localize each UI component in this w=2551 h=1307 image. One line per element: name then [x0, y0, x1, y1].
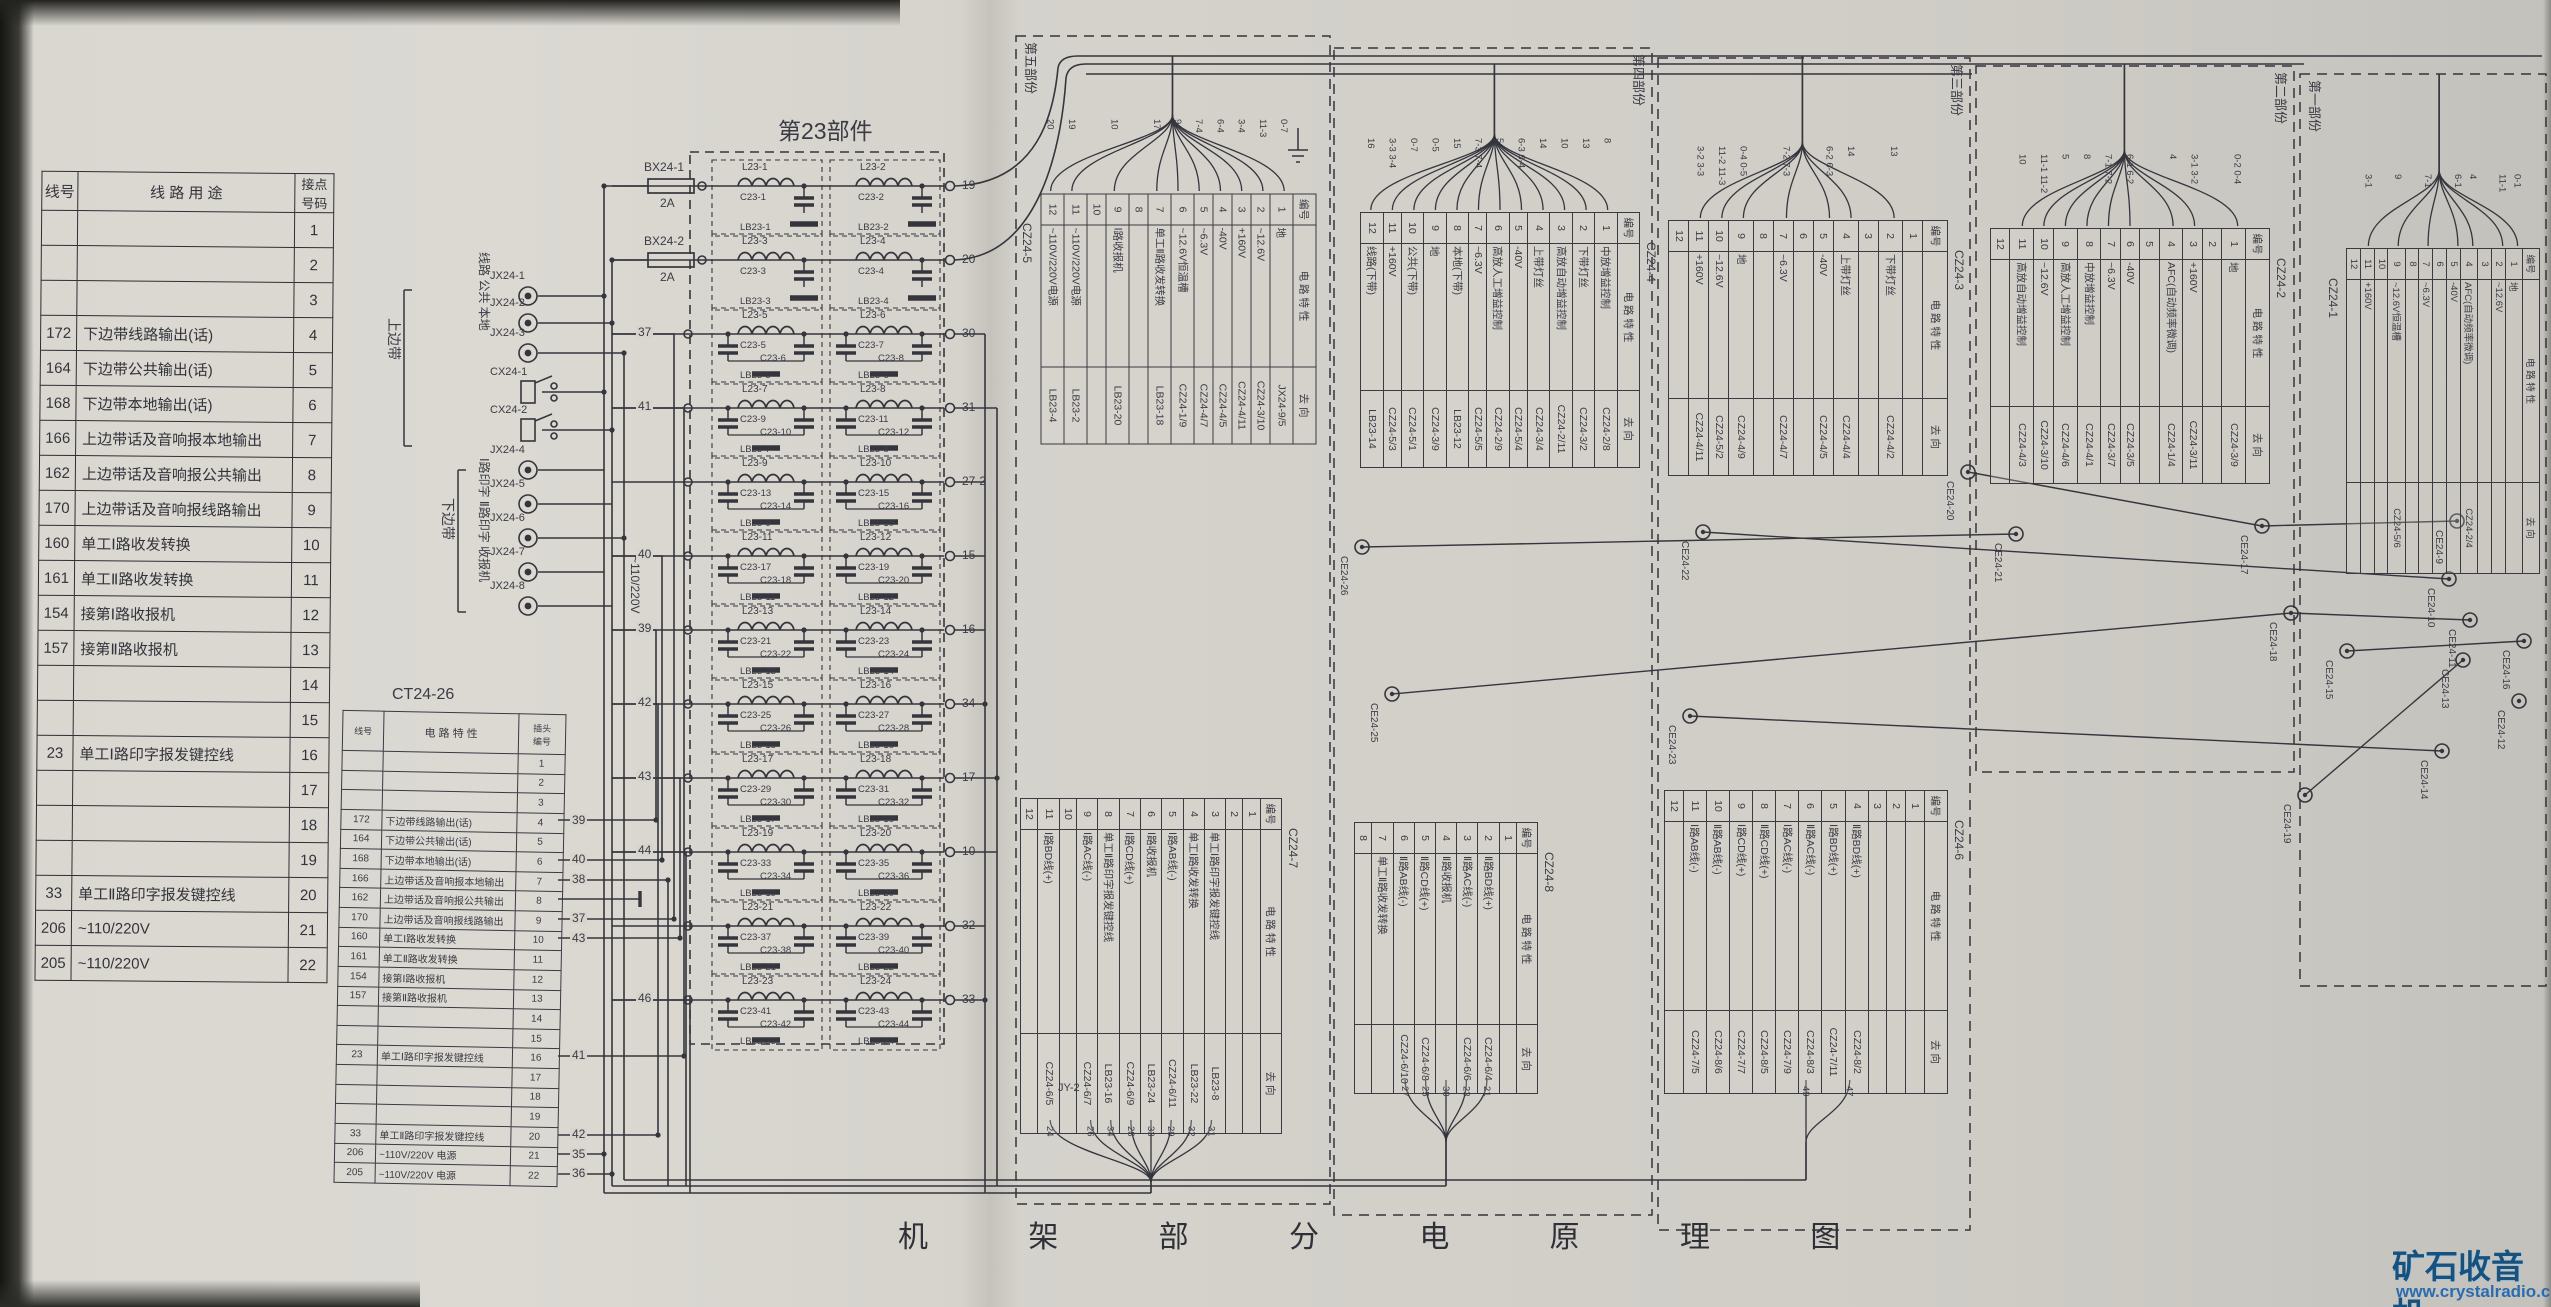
junction-dot: [609, 1171, 614, 1176]
destination: [1753, 399, 1773, 476]
interconnect-wire: [558, 334, 674, 919]
jack-center: [525, 350, 532, 357]
pin-row: 11Ⅰ路BD线(+)CZ24-6/5: [1038, 799, 1059, 1134]
filter-input-number: 46: [636, 992, 653, 1004]
pin-row: 4单工Ⅰ路收发转换LB23-22: [1183, 799, 1204, 1134]
junction-dot: [601, 293, 606, 298]
ct-table-grid: 线号电 路 特 性插头 编号123172下边带线路输出(话)4164下边带公共输…: [333, 710, 566, 1187]
capacitor-label: C23-31: [858, 784, 889, 795]
column-header: 电 路 特 性: [383, 711, 519, 754]
pin-number: 8: [2405, 249, 2419, 280]
filter-label: LB23-14: [858, 666, 894, 677]
destination: CZ24-6/6: [1457, 1025, 1478, 1094]
pin-number: 3: [294, 282, 333, 317]
connector-name-CZ24-6: CZ24-6: [1952, 820, 1966, 910]
pin-number: 1: [1595, 213, 1617, 244]
capacitor-label: C23-6: [760, 353, 786, 364]
inductor-coil: [738, 549, 794, 557]
plug-pin-number: 6: [516, 852, 563, 873]
circuit-characteristic: Ⅱ路BD线(+): [1845, 822, 1868, 1011]
circuit-characteristic: Ⅱ路AB线(-): [1393, 854, 1414, 1025]
fan-wire-number: 5: [2059, 154, 2070, 198]
circuit-characteristic: Ⅰ路CD线(+): [1730, 822, 1753, 1011]
pin-row: 2下带灯丝CZ24-3/2: [1572, 213, 1594, 468]
circuit-characteristic: 高放人工增益控制: [2053, 260, 2077, 407]
line-number: 162: [39, 455, 75, 490]
line-usage: 单工Ⅱ路收发转换: [74, 561, 291, 598]
circuit-characteristic: 本地(下带): [1446, 244, 1468, 391]
pin-number: 4: [1213, 194, 1232, 225]
fuse-rating: 2A: [660, 270, 675, 284]
column-header: 去 向: [1617, 391, 1639, 468]
ce-link-line: [1392, 613, 2291, 694]
pin-number: 12: [1021, 799, 1038, 830]
inductor-coil: [856, 327, 912, 335]
circuit-characteristic: Ⅰ路BD线(+): [1822, 822, 1845, 1011]
destination: [2374, 483, 2388, 574]
circuit-characteristic: [2347, 280, 2361, 483]
pin-number: 7: [1148, 194, 1171, 225]
ce-point-center: [2303, 793, 2307, 797]
circuit-characteristic: 上带灯丝: [1527, 244, 1549, 391]
pin-row: 9Ⅰ路AC线(-)CZ24-6/7: [1077, 799, 1098, 1134]
ce-point-center: [2260, 524, 2264, 528]
circuit-characteristic: +160V: [1383, 244, 1401, 391]
pin-row: 10: [1087, 194, 1106, 444]
junction-dot: [681, 1053, 686, 1058]
ce-point-label: CE24-17: [2238, 535, 2249, 605]
line-usage: [73, 666, 290, 703]
fan-wire-number: 32: [1185, 1126, 1196, 1166]
pin-number: 12: [291, 597, 330, 632]
fan-wire-number: 19: [1066, 119, 1077, 163]
circuit-characteristic: ~12.6V: [2034, 260, 2053, 407]
circuit-characteristic: [1243, 830, 1260, 1034]
filter-output-terminal: [946, 700, 955, 709]
ce-point-label: CE24-12: [2495, 710, 2506, 780]
pin-number: 10: [2374, 249, 2388, 280]
ce-point-label: CE24-26: [1338, 556, 1349, 626]
jack-label: JX24-7: [490, 546, 525, 558]
pin-number: 10: [1087, 194, 1106, 225]
circuit-characteristic: [1669, 252, 1689, 399]
circuit-characteristic: ~12.6V恒温槽: [1171, 225, 1194, 367]
switch-CX24-2: [521, 419, 535, 441]
circuit-characteristic: [2202, 260, 2221, 407]
connector-table-CZ24-1: 编号电 路 特 性去 向1地2~12.6V34AFC(自动频率微调)CZ24-2…: [2346, 248, 2540, 558]
pin-number: 7: [1469, 213, 1487, 244]
pin-number: 22: [288, 947, 327, 982]
interconnect-wire: [558, 408, 684, 1056]
circuit-characteristic: [2140, 260, 2159, 407]
table-row: 14: [37, 665, 329, 703]
line-usage-table: 线号线 路 用 途接点 号码123172下边带线路输出(话)4164下边带公共输…: [34, 171, 334, 984]
destination: CZ24-3/4: [1527, 391, 1549, 468]
filter-output-terminal: [946, 922, 955, 931]
pin-number: 4: [1527, 213, 1549, 244]
switch-CX24-1: [521, 381, 535, 403]
circuit-characteristic: [2405, 280, 2419, 483]
fan-wire-number: 10: [1108, 119, 1119, 163]
table-row: 17: [37, 770, 329, 808]
destination: CZ24-5/6: [2388, 483, 2405, 574]
filter-output-terminal: [946, 404, 955, 413]
section-name: 第五部份: [1022, 42, 1041, 152]
pin-row: 11高放自动增益控制CZ24-4/3: [2010, 229, 2034, 484]
line-usage: ~110/220V: [71, 911, 288, 948]
pin-number: 4: [1833, 221, 1858, 252]
column-header: 编号: [1516, 823, 1537, 854]
fan-wire-number: 29: [1165, 1126, 1176, 1166]
ce-point-label: CE24-21: [1992, 543, 2003, 613]
fan-wire-number: 13: [1888, 146, 1899, 190]
switch-lever: [535, 414, 552, 421]
pin-row: 2下带灯丝CZ24-4/2: [1878, 221, 1903, 476]
capacitor-label: C23-29: [740, 784, 771, 795]
table-row: 18: [36, 805, 328, 843]
pin-row: 4上带灯丝CZ24-4/4: [1833, 221, 1858, 476]
circuit-characteristic: 地: [1424, 244, 1446, 391]
jack-label: CX24-1: [490, 366, 527, 378]
ce-point-label: CE24-25: [1368, 703, 1379, 773]
fan-wire-number: 11-1 11-2: [2038, 154, 2049, 198]
circuit-characteristic: 地: [1269, 225, 1292, 367]
ce-point-center: [2522, 639, 2526, 643]
pin-row: 3单工Ⅰ路印字报发键控线LB23-8: [1204, 799, 1225, 1134]
destination: CZ24-6/9: [1119, 1034, 1140, 1134]
capacitor-label: C23-8: [878, 353, 904, 364]
destination: CZ24-4/7: [1194, 367, 1213, 444]
plug-pin-number: 11: [514, 950, 561, 971]
ce-point-label: CE24-19: [2281, 804, 2292, 874]
circuit-characteristic: [1868, 822, 1887, 1011]
circuit-characteristic: 单工Ⅰ路收发转换: [1183, 830, 1204, 1034]
upper-sideband-bracket: [404, 290, 412, 446]
pin-number: 12: [1041, 194, 1064, 225]
ce-link-line: [2291, 613, 2470, 620]
pin-row: 10: [2374, 249, 2388, 574]
fan-wire: [2124, 150, 2237, 226]
pin-number: 7: [1372, 823, 1393, 854]
circuit-characteristic: 下带灯丝: [1878, 252, 1903, 399]
pin-number: 2: [1250, 194, 1269, 225]
pin-row: 12: [1021, 799, 1038, 1134]
capacitor-label: C23-18: [760, 575, 791, 586]
ce-point-label: CE24-14: [2418, 760, 2429, 830]
inductor-label: L23-14: [860, 606, 891, 617]
filter-output-terminal: [946, 996, 955, 1005]
destination: CZ24-6/8: [1414, 1025, 1435, 1094]
destination: [2505, 483, 2522, 574]
pin-number: 1: [2505, 249, 2522, 280]
fan-wire-number: 14: [1537, 138, 1548, 182]
pin-number: 8: [2077, 229, 2101, 260]
jack-label: JX24-4: [490, 444, 525, 456]
pin-number: 9: [2053, 229, 2077, 260]
line-usage: 下边带本地输出(话): [76, 386, 293, 423]
fan-wire-number: 0-7: [1408, 138, 1419, 182]
capacitor-label: C23-41: [740, 1006, 771, 1017]
connector-table-CZ24-5: 编号电 路 特 性去 向1地JX24-9/52~12.6VCZ24-3/103+…: [1040, 193, 1316, 428]
table-row: 164下边带公共输出(话)5: [40, 350, 332, 388]
column-header: 编号: [2246, 229, 2270, 260]
pin-row: 12: [1669, 221, 1689, 476]
filter-label: LB23-2: [858, 222, 889, 233]
filter-input-number: 42: [636, 696, 653, 708]
line-number: 168: [40, 385, 76, 420]
line-number: 206: [334, 1143, 375, 1163]
column-header: 去 向: [1923, 399, 1948, 476]
table-row: 162上边带话及音响报公共输出8: [39, 455, 331, 493]
destination: CZ24-6/11: [1162, 1034, 1183, 1134]
circuit-characteristic: Ⅱ路AB线(-): [1706, 822, 1729, 1011]
pin-row: 6: [2433, 249, 2447, 574]
capacitor-label: C23-23: [858, 636, 889, 647]
pin-row: 1: [1243, 799, 1260, 1134]
line-usage: 接第Ⅰ路收报机: [74, 596, 291, 633]
line-usage: 上边带话及音响报线路输出: [75, 491, 292, 528]
circuit-characteristic: ~6.3V: [1194, 225, 1213, 367]
line-number: [36, 805, 72, 840]
pin-row: 4AFC(自动频率微调)CZ24-1/4: [2159, 229, 2183, 484]
table-row: 205~110V/220V 电源22: [334, 1162, 557, 1186]
destination: CZ24-6/10: [1393, 1025, 1414, 1094]
filter-output-number: 31: [962, 400, 975, 414]
circuit-characteristic: ~12.6V恒温槽: [2388, 280, 2405, 483]
filter-output-number: 17: [962, 770, 975, 784]
circuit-characteristic: Ⅱ路AC线(-): [1799, 822, 1822, 1011]
inductor-coil: [856, 993, 912, 1001]
destination: [2419, 483, 2433, 574]
plug-pin-number: 14: [513, 1009, 560, 1030]
plug-pin-number: 21: [510, 1146, 557, 1167]
fan-wire-number: 13: [1580, 138, 1591, 182]
capacitor-label: C23-39: [858, 932, 889, 943]
circuit-characteristic: [1753, 252, 1773, 399]
switch-contact: [551, 395, 557, 401]
plug-pin-number: 15: [513, 1028, 560, 1049]
destination: [1903, 399, 1923, 476]
filter-output-number: 33: [962, 992, 975, 1006]
watermark-url: www.crystalradio.cn: [2396, 1282, 2551, 1302]
capacitor-label: C23-34: [760, 871, 791, 882]
destination: CZ24-3/10: [1250, 367, 1269, 444]
capacitor-label: C23-35: [858, 858, 889, 869]
plug-pin-number: 17: [512, 1068, 559, 1089]
connector-name-CZ24-5: CZ24-5: [1020, 223, 1034, 313]
fuse-label: BX24-2: [644, 234, 684, 248]
destination: CZ24-4/11: [1689, 399, 1709, 476]
circuit-characteristic: Ⅱ路收报机: [1435, 854, 1456, 1025]
line-number: 172: [341, 809, 382, 829]
circuit-characteristic: 单工Ⅰ路印字报发键控线: [1204, 830, 1225, 1034]
ce-point-label: CE24-22: [1679, 541, 1690, 611]
circuit-characteristic: [1793, 252, 1813, 399]
destination: CZ24-6/4: [1478, 1025, 1499, 1094]
pin-row: 7单工Ⅱ路收发转换: [1372, 823, 1393, 1094]
jack-center: [525, 501, 532, 508]
capacitor-label: C23-14: [760, 501, 791, 512]
inductor-label: L23-21: [742, 902, 773, 913]
line-number: [342, 770, 383, 790]
table-row: 205~110/220V22: [35, 945, 327, 983]
pin-number: 11: [1064, 194, 1087, 225]
pin-number: 8: [1129, 194, 1148, 225]
circuit-characteristic: 单工Ⅰ路印字报发键控线: [377, 1046, 512, 1068]
table-row: 168下边带本地输出(话)6: [40, 385, 332, 423]
pin-number: 11: [2010, 229, 2034, 260]
destination: CZ24-3/5: [2120, 407, 2139, 484]
pin-row: 10~12.6VCZ24-3/10: [2034, 229, 2053, 484]
pin-number: 2: [1478, 823, 1499, 854]
capacitor-label: C23-2: [858, 192, 884, 203]
pin-row: 5-40VCZ24-4/5: [1813, 221, 1833, 476]
pin-row: 1: [1906, 791, 1925, 1094]
line-number: 154: [38, 595, 74, 630]
inductor-coil: [738, 697, 794, 705]
circuit-characteristic: Ⅰ路收报机: [1140, 830, 1161, 1034]
table-row: 206~110/220V21: [35, 910, 327, 948]
destination: [2140, 407, 2159, 484]
circuit-characteristic: 高放人工增益控制: [1487, 244, 1509, 391]
plug-pin-number: 7: [516, 872, 563, 893]
pin-row: 8Ⅱ路CD线(+)CZ24-8/5: [1753, 791, 1776, 1094]
ce-point-center: [2440, 749, 2444, 753]
junction-dot: [621, 535, 626, 540]
circuit-characteristic: -40V: [2447, 280, 2461, 483]
destination: [1868, 1011, 1887, 1094]
pin-number: 15: [290, 702, 329, 737]
line-number: 168: [340, 849, 381, 869]
fan-wire-number: 7-1 7-2: [2102, 154, 2113, 198]
pin-row: 3+160VCZ24-4/11: [1232, 194, 1251, 444]
jack-label: JX24-3: [490, 327, 525, 339]
column-header: 线 路 用 途: [78, 172, 295, 213]
table-row: 23单工Ⅰ路印字报发键控线16: [37, 735, 329, 773]
pin-number: 2: [1887, 791, 1906, 822]
circuit-characteristic: Ⅰ路BD线(+): [1038, 830, 1059, 1034]
destination: CZ24-4/5: [1213, 367, 1232, 444]
ce-point-center: [2345, 649, 2349, 653]
circuit-characteristic: ~6.3V: [1469, 244, 1487, 391]
pin-row: 1中放增益控制CZ24-2/8: [1595, 213, 1617, 468]
filter-label: LB23-23: [740, 1036, 776, 1047]
drawing-title: 机 架 部 分 电 原 理 图: [898, 1212, 1886, 1256]
inductor-label: L23-2: [860, 162, 886, 173]
line-number: 172: [40, 315, 76, 350]
line-number: 157: [38, 630, 74, 665]
destination: [1129, 367, 1148, 444]
fan-wire-number: 0-1: [2512, 174, 2523, 218]
inductor-label: L23-1: [742, 162, 768, 173]
fan-wire-number: 11-1: [2497, 174, 2508, 218]
destination: CZ24-2/9: [1487, 391, 1509, 468]
circuit-characteristic: ~110V/220V 电源: [375, 1163, 510, 1185]
section-name: 第四部份: [1630, 54, 1649, 164]
line-usage: 单工Ⅰ路印字报发键控线: [73, 736, 290, 773]
line-number: 160: [39, 525, 75, 560]
pin-row: 8: [1355, 823, 1372, 1094]
line-usage: 下边带公共输出(话): [76, 351, 293, 388]
pin-row: 5Ⅰ路AB线(-)CZ24-6/11: [1162, 799, 1183, 1134]
pin-number: 11: [2360, 249, 2374, 280]
circuit-characteristic: 高放自动增益控制: [2010, 260, 2034, 407]
inductor-coil: [856, 771, 912, 779]
destination: LB23-24: [1140, 1034, 1161, 1134]
pin-number: 10: [1059, 799, 1076, 830]
line-number: [41, 280, 77, 315]
destination: CZ24-1/4: [2159, 407, 2183, 484]
upper-sideband-label: 上边带: [384, 318, 404, 428]
pin-row: 5Ⅰ路BD线(+)CZ24-7/11: [1822, 791, 1845, 1094]
destination: CZ24-3/9: [1424, 391, 1446, 468]
line-number: 33: [36, 875, 72, 910]
circuit-characteristic: 单工Ⅱ路印字报发键控线: [376, 1124, 511, 1146]
circuit-characteristic: -40V: [1509, 244, 1527, 391]
capacitor-label: C23-16: [878, 501, 909, 512]
pin-number: 5: [1509, 213, 1527, 244]
filter-label: LB23-17: [740, 814, 776, 825]
plug-pin-number: 22: [510, 1166, 557, 1187]
line-usage: [72, 841, 289, 878]
circuit-characteristic: 上边带话及音响报本地输出: [381, 869, 516, 891]
destination: LB23-18: [1148, 367, 1171, 444]
pin-number: 8: [1446, 213, 1468, 244]
column-header: 接点 号码: [295, 173, 334, 212]
pin-row: 3: [1868, 791, 1887, 1094]
circuit-characteristic: 地: [2222, 260, 2246, 407]
pin-row: 11Ⅰ路AB线(-)CZ24-7/5: [1683, 791, 1706, 1094]
pin-number: 8: [1753, 791, 1776, 822]
inductor-coil: [738, 845, 794, 853]
junction-dot: [609, 257, 614, 262]
column-header: 编号: [1617, 213, 1639, 244]
filter-output-number: 10: [962, 844, 975, 858]
jack-center: [525, 603, 532, 610]
destination: CZ24-5/4: [1509, 391, 1527, 468]
wire-number: 37: [570, 912, 587, 924]
filter-output-number: 30: [962, 326, 975, 340]
ce-point-center: [1966, 470, 1970, 474]
pin-number: 11: [1689, 221, 1709, 252]
wire-number: 36: [570, 1167, 587, 1179]
fan-wire-number: 0-4 0-5: [1737, 146, 1748, 190]
circuit-characteristic: 上边带话及音响报公共输出: [380, 889, 515, 911]
pin-number: 3: [2478, 249, 2492, 280]
plug-pin-number: 19: [511, 1107, 558, 1128]
pin-row: 2Ⅱ路BD线(+)CZ24-6/4: [1478, 823, 1499, 1094]
capacitor-label: C23-44: [878, 1019, 909, 1030]
wire-number: 43: [570, 932, 587, 944]
interconnect-wire: [558, 630, 656, 820]
pin-row: 9地CZ24-3/9: [1424, 213, 1446, 468]
pin-number: 5: [1822, 791, 1845, 822]
junction-dot: [653, 817, 658, 822]
connector-table-grid: 编号电 路 特 性去 向12下带灯丝CZ24-4/234上带灯丝CZ24-4/4…: [1668, 220, 1948, 476]
pin-number: 5: [1414, 823, 1435, 854]
filter-output-terminal: [946, 774, 955, 783]
wire-number: 38: [570, 873, 587, 885]
pin-number: 9: [1729, 221, 1754, 252]
pin-number: 4: [1183, 799, 1204, 830]
connector-name-CZ24-8: CZ24-8: [1542, 852, 1556, 942]
junction-dot: [677, 935, 682, 940]
filter-label: LB23-13: [740, 666, 776, 677]
circuit-characteristic: [378, 1026, 513, 1048]
circuit-characteristic: ~6.3V: [1773, 252, 1793, 399]
filter-output-number: 15: [962, 548, 975, 562]
pin-number: 8: [1355, 823, 1372, 854]
